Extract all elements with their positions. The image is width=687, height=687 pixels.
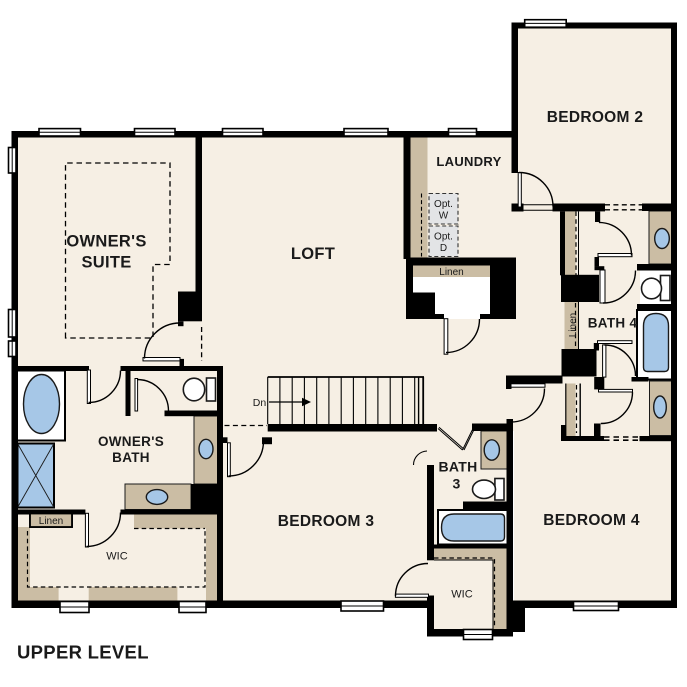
svg-text:SUITE: SUITE bbox=[81, 254, 131, 272]
svg-text:BEDROOM 4: BEDROOM 4 bbox=[543, 512, 640, 529]
svg-text:W: W bbox=[439, 211, 449, 222]
svg-text:OWNER'S: OWNER'S bbox=[66, 232, 146, 250]
svg-text:WIC: WIC bbox=[451, 589, 472, 601]
svg-text:WIC: WIC bbox=[106, 551, 127, 563]
svg-text:Linen: Linen bbox=[568, 313, 579, 337]
svg-text:OWNER'S: OWNER'S bbox=[98, 434, 164, 449]
svg-text:Linen: Linen bbox=[39, 516, 63, 527]
svg-text:UPPER LEVEL: UPPER LEVEL bbox=[17, 642, 149, 663]
svg-text:3: 3 bbox=[452, 476, 460, 492]
svg-text:Dn: Dn bbox=[253, 397, 267, 409]
svg-text:Linen: Linen bbox=[439, 267, 463, 278]
svg-text:BEDROOM 2: BEDROOM 2 bbox=[547, 109, 644, 126]
svg-text:LOFT: LOFT bbox=[291, 245, 335, 263]
svg-text:BATH: BATH bbox=[438, 459, 477, 475]
svg-text:Opt.: Opt. bbox=[434, 199, 453, 210]
svg-text:Opt.: Opt. bbox=[434, 232, 453, 243]
svg-text:D: D bbox=[440, 243, 447, 254]
svg-text:BATH: BATH bbox=[112, 450, 150, 465]
svg-text:LAUNDRY: LAUNDRY bbox=[436, 154, 501, 169]
svg-text:BEDROOM 3: BEDROOM 3 bbox=[278, 513, 375, 530]
svg-text:BATH 4: BATH 4 bbox=[588, 316, 638, 331]
